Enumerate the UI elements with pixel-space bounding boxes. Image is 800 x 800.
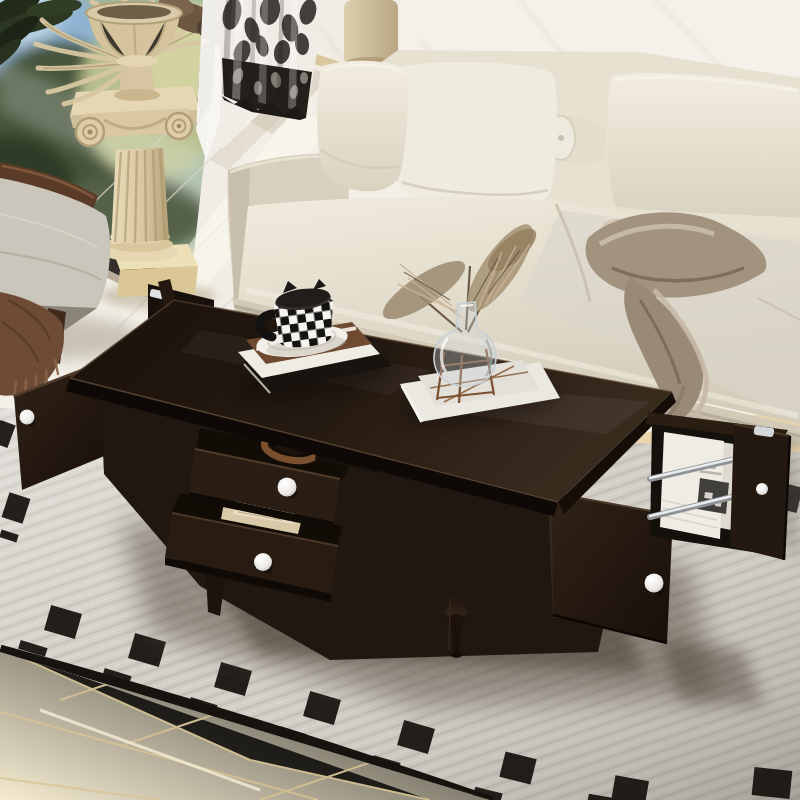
- right-end-door: [730, 424, 790, 560]
- back-cushion-right: [607, 73, 800, 218]
- product-lifestyle-photo: [0, 0, 800, 800]
- back-cushion-left: [317, 61, 408, 192]
- left-door-knob: [20, 410, 35, 425]
- back-cushion-center: [394, 62, 557, 207]
- side-compartment: [646, 412, 790, 560]
- front-door-knob: [645, 574, 664, 593]
- drawer-lower-knob: [254, 553, 272, 571]
- living-room-scene: [0, 0, 800, 800]
- right-door-knob: [756, 483, 768, 495]
- drawer-upper-knob: [278, 478, 297, 497]
